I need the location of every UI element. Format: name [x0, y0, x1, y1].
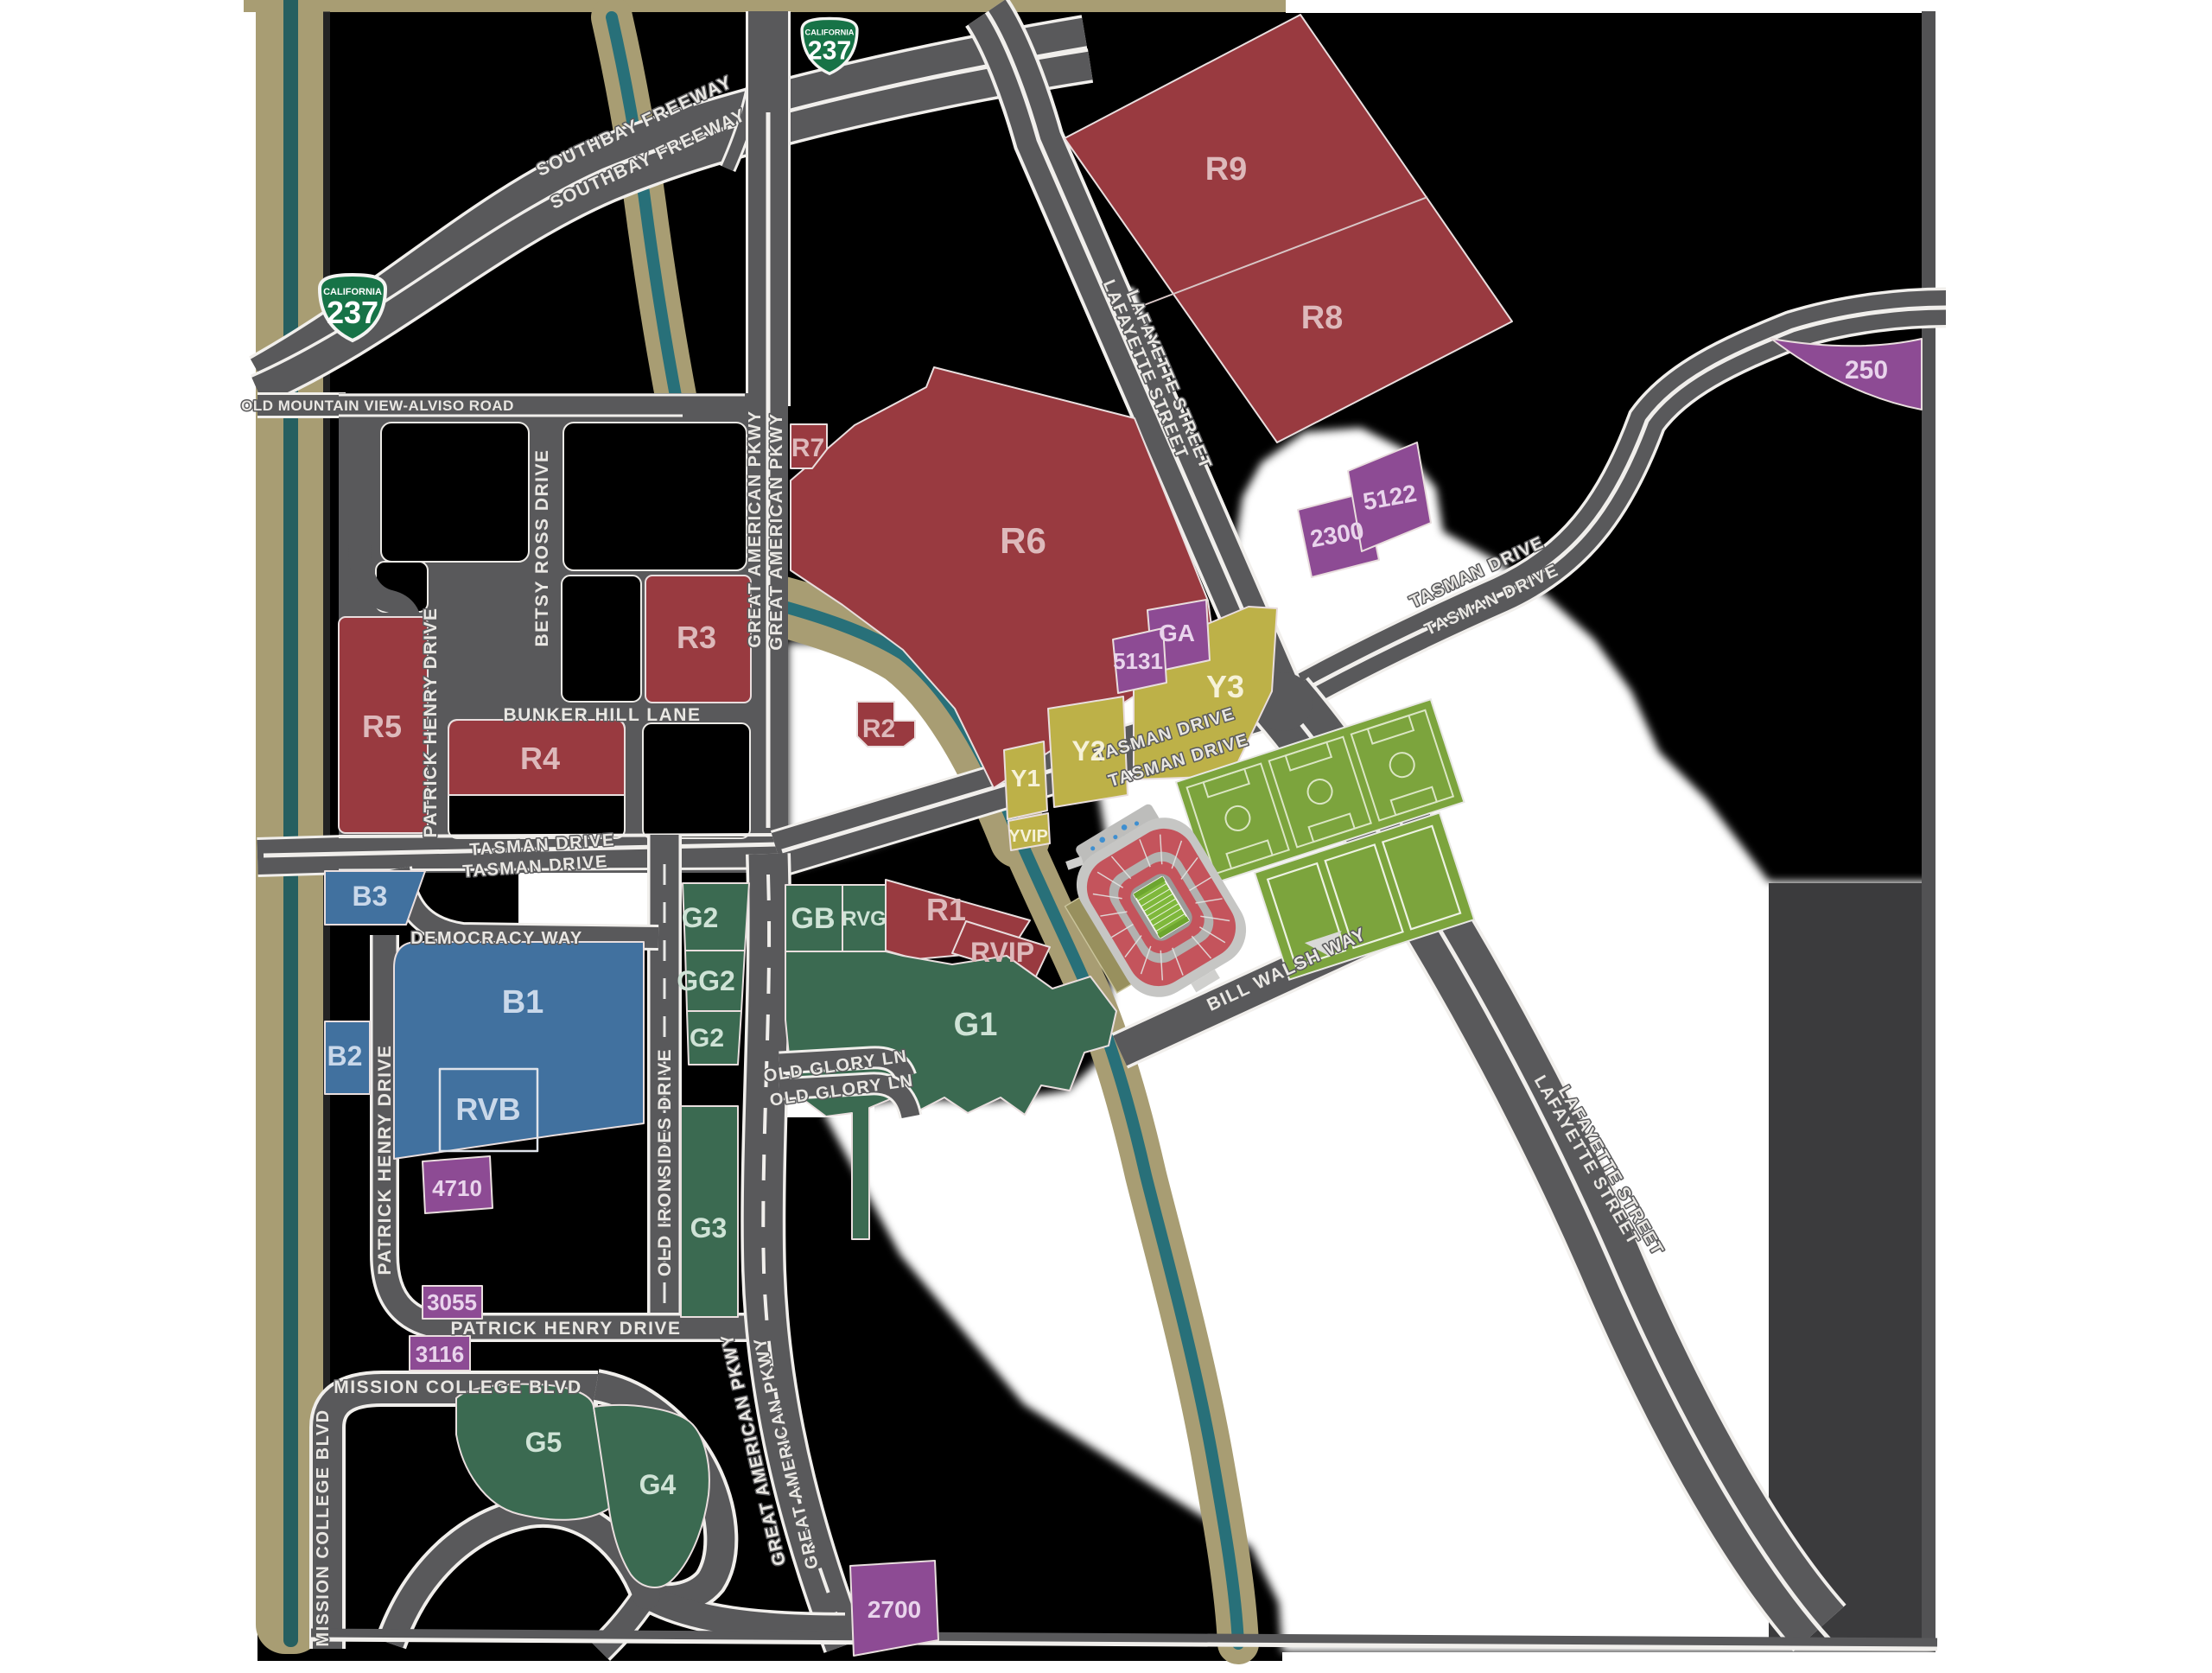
svg-text:B2: B2 — [327, 1040, 363, 1072]
svg-text:R6: R6 — [1000, 520, 1046, 561]
svg-text:OLD MOUNTAIN VIEW-ALVISO ROAD: OLD MOUNTAIN VIEW-ALVISO ROAD — [241, 398, 514, 414]
svg-text:GB: GB — [791, 902, 836, 935]
svg-text:MISSION COLLEGE BLVD: MISSION COLLEGE BLVD — [314, 1409, 333, 1646]
svg-text:R5: R5 — [362, 709, 402, 744]
svg-text:250: 250 — [1845, 356, 1888, 385]
svg-text:DEMOCRACY WAY: DEMOCRACY WAY — [410, 929, 583, 948]
svg-text:Y1: Y1 — [1011, 765, 1040, 792]
svg-text:B1: B1 — [502, 984, 544, 1021]
svg-text:GA: GA — [1159, 620, 1195, 646]
svg-text:R3: R3 — [677, 620, 716, 655]
svg-text:MISSION COLLEGE BLVD: MISSION COLLEGE BLVD — [334, 1377, 582, 1397]
svg-text:237: 237 — [808, 36, 851, 65]
svg-text:PATRICK HENRY DRIVE: PATRICK HENRY DRIVE — [421, 607, 441, 838]
svg-text:2700: 2700 — [868, 1596, 921, 1623]
svg-text:GG2: GG2 — [677, 965, 735, 996]
svg-text:G1: G1 — [954, 1007, 998, 1043]
svg-text:OLD IRONSIDES DRIVE: OLD IRONSIDES DRIVE — [655, 1048, 675, 1276]
svg-text:G3: G3 — [690, 1212, 728, 1244]
svg-text:R8: R8 — [1301, 300, 1344, 336]
svg-text:BETSY ROSS DRIVE: BETSY ROSS DRIVE — [532, 449, 552, 647]
svg-text:R2: R2 — [862, 715, 895, 743]
svg-text:G5: G5 — [525, 1427, 563, 1458]
svg-text:GREAT AMERICAN PKWY: GREAT AMERICAN PKWY — [746, 410, 765, 647]
svg-text:3055: 3055 — [427, 1289, 477, 1315]
svg-text:G2: G2 — [690, 1024, 724, 1053]
svg-text:G4: G4 — [639, 1469, 677, 1500]
svg-text:PATRICK HENRY DRIVE: PATRICK HENRY DRIVE — [375, 1045, 395, 1275]
svg-text:G2: G2 — [682, 902, 719, 933]
svg-text:5131: 5131 — [1113, 648, 1163, 674]
svg-text:YVIP: YVIP — [1008, 827, 1048, 846]
svg-text:Y3: Y3 — [1206, 669, 1244, 704]
svg-text:GREAT AMERICAN PKWY: GREAT AMERICAN PKWY — [767, 412, 786, 650]
svg-text:R4: R4 — [520, 741, 560, 776]
svg-text:R1: R1 — [926, 892, 966, 927]
svg-text:B3: B3 — [353, 881, 388, 912]
svg-text:RVB: RVB — [455, 1091, 520, 1127]
svg-text:237: 237 — [327, 295, 378, 330]
svg-text:R7: R7 — [791, 434, 824, 462]
svg-text:RVG: RVG — [842, 907, 887, 931]
svg-text:RVIP: RVIP — [970, 937, 1034, 968]
svg-text:BUNKER HILL LANE: BUNKER HILL LANE — [504, 705, 702, 725]
svg-text:R9: R9 — [1205, 151, 1248, 188]
svg-text:3116: 3116 — [416, 1341, 464, 1367]
svg-text:PATRICK HENRY DRIVE: PATRICK HENRY DRIVE — [451, 1319, 682, 1339]
svg-text:4710: 4710 — [432, 1175, 482, 1201]
svg-text:Y2: Y2 — [1071, 735, 1105, 767]
svg-text:CALIFORNIA: CALIFORNIA — [805, 29, 855, 37]
